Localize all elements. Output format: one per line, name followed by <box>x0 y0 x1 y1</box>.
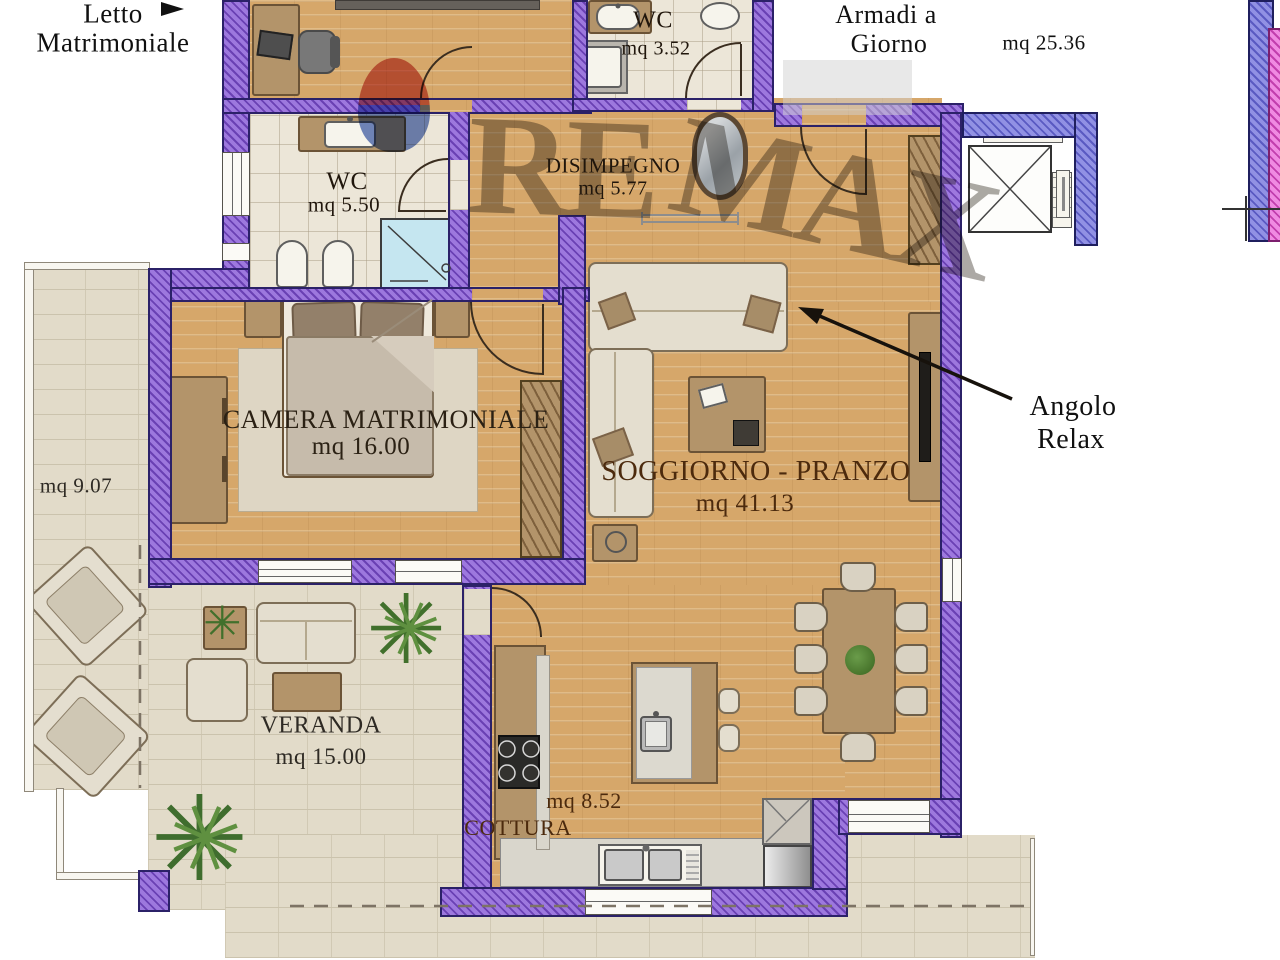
letto-arrow-icon <box>161 2 184 16</box>
label-armadi-line1: Armadi a <box>835 0 936 30</box>
label-backdrop <box>783 60 912 115</box>
label-soggiorno-area: mq 41.13 <box>696 490 794 518</box>
label-wc-main-area: mq 5.50 <box>308 193 380 218</box>
label-veranda-area: mq 15.00 <box>276 744 367 770</box>
label-wc-top-name: WC <box>633 8 673 35</box>
label-camera-area: mq 16.00 <box>312 433 410 461</box>
label-wc-top-area: mq 3.52 <box>621 38 690 61</box>
stove-burners <box>499 741 539 781</box>
label-armadi-line2: Giorno <box>851 29 928 59</box>
label-veranda-name: VERANDA <box>261 713 382 740</box>
angolo-relax-arrow-icon <box>798 307 1012 399</box>
floor-plan: ✳ ✳✳ ✳✳ <box>0 0 1280 960</box>
label-soggiorno-name: SOGGIORNO - PRANZO <box>601 456 910 488</box>
label-angolo-line2: Relax <box>1037 424 1105 456</box>
label-camera-name: CAMERA MATRIMONIALE <box>223 405 550 435</box>
label-letto-line1: Letto <box>83 0 142 30</box>
label-armadi-area: mq 25.36 <box>1002 31 1085 56</box>
label-disimpegno-name: DISIMPEGNO <box>546 154 681 179</box>
label-cottura-name: COTTURA <box>464 815 571 841</box>
corner-cabinet-lines <box>766 800 809 842</box>
label-letto-line2: Matrimoniale <box>37 28 190 59</box>
label-cottura-area: mq 8.52 <box>546 788 622 814</box>
label-terrace-area: mq 9.07 <box>40 474 112 499</box>
survey-crosshair-icon <box>1222 196 1280 241</box>
shower-glass-lines <box>388 226 450 281</box>
duvet-fold-line <box>372 300 432 342</box>
label-angolo-line1: Angolo <box>1030 391 1117 423</box>
label-disimpegno-area: mq 5.77 <box>578 178 647 201</box>
